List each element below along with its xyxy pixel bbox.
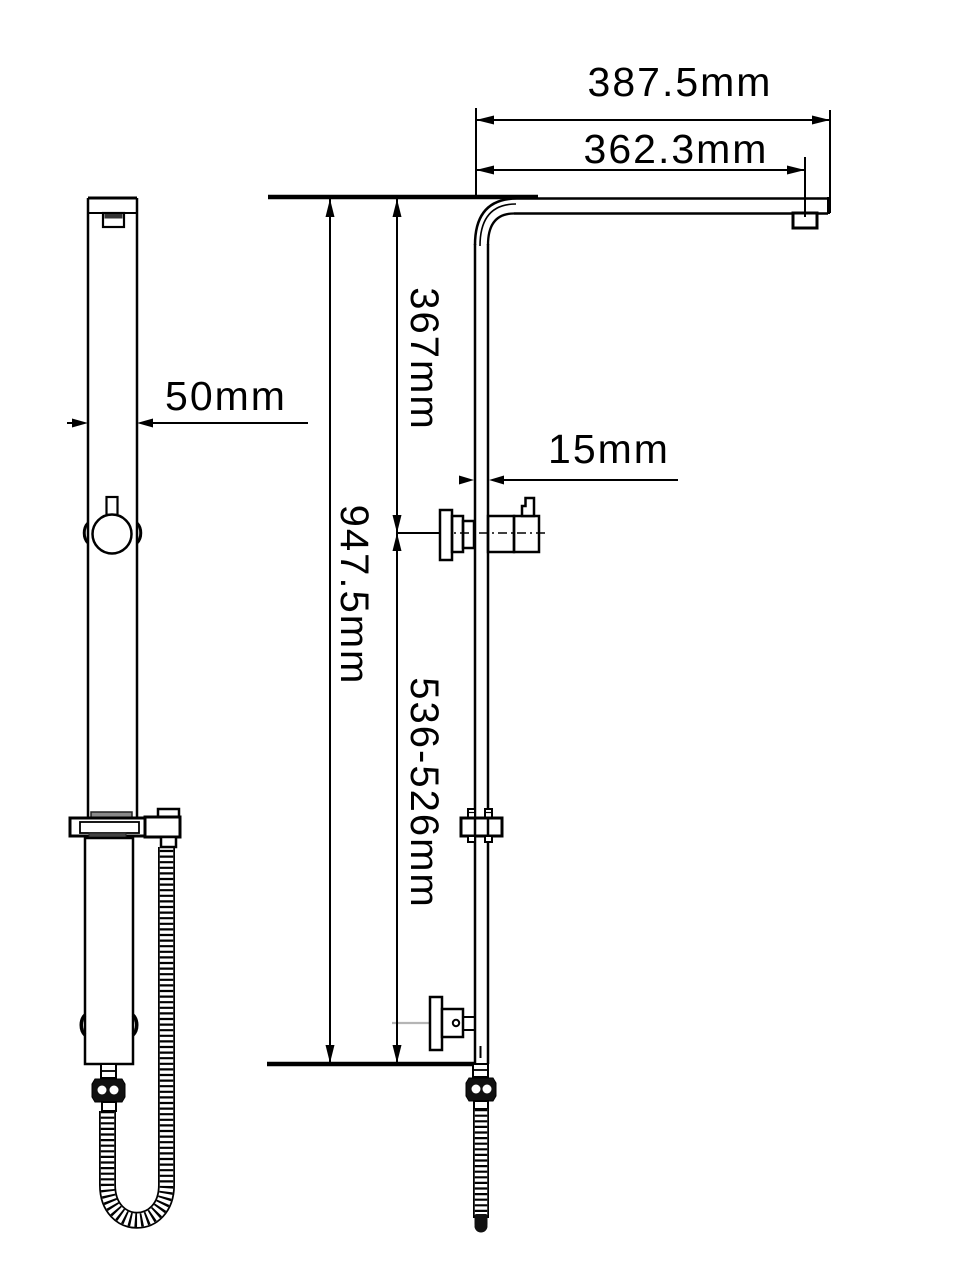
arrowhead [476, 116, 494, 125]
inlet-valve [392, 997, 474, 1050]
dimension-top-to-diverter: 367mm [393, 199, 447, 533]
top-mount-cap [103, 213, 124, 227]
slider-knob [84, 497, 141, 554]
drawing-canvas: 387.5mm 362.3mm 50mm 15mm [0, 0, 954, 1269]
dim-label-rail-width: 50mm [165, 373, 287, 419]
dim-label-arm-overall: 387.5mm [588, 59, 773, 105]
dimension-rail-width: 50mm [67, 373, 308, 428]
hose-connector-nut [92, 1079, 125, 1111]
dim-label-top-to-diverter: 367mm [402, 287, 446, 430]
arrowhead [393, 199, 402, 217]
technical-drawing: 387.5mm 362.3mm 50mm 15mm [0, 0, 954, 1269]
inlet-connector [466, 1064, 496, 1109]
side-view [70, 198, 180, 1220]
riser-pipe [475, 199, 517, 1065]
dim-label-pipe-depth: 15mm [548, 426, 670, 472]
corner-bend-outer [475, 199, 517, 246]
slide-bracket [461, 809, 502, 842]
arrowhead [476, 166, 494, 175]
holder-hose-stub [161, 837, 176, 847]
dimension-overall-height: 947.5mm [326, 199, 377, 1063]
arrowhead [812, 116, 830, 125]
diverter-valve [440, 498, 547, 560]
handshower-body [81, 838, 137, 1078]
arrowhead [489, 476, 504, 485]
dim-label-overall-height: 947.5mm [332, 505, 376, 686]
arrowhead [326, 199, 335, 217]
dim-label-diverter-to-inlet: 536-526mm [402, 677, 446, 908]
corner-bend-inner [488, 214, 514, 246]
dimension-arm-overall: 387.5mm [476, 59, 830, 125]
arrowhead [393, 515, 402, 533]
inlet-connector-nut [466, 1078, 496, 1101]
arrowhead [326, 1045, 335, 1063]
slider-knob-stem [107, 497, 118, 515]
dim-label-arm-to-outlet: 362.3mm [584, 126, 769, 172]
dimension-diverter-to-inlet: 536-526mm [393, 533, 447, 1063]
cap-dark-strip [105, 214, 123, 219]
dimension-arm-to-outlet: 362.3mm [476, 126, 805, 175]
diverter-handle [522, 498, 534, 516]
arrowhead [393, 1045, 402, 1063]
arrowhead [393, 533, 402, 551]
arrowhead [72, 419, 88, 428]
dimension-pipe-depth: 15mm [459, 426, 678, 485]
arrowhead [137, 419, 153, 428]
front-view [392, 197, 829, 1233]
handshower-holder [145, 817, 180, 837]
arrowhead [459, 476, 474, 485]
arrowhead [787, 166, 805, 175]
inlet-flange [430, 997, 442, 1050]
valve-flange [440, 510, 452, 560]
shower-arm [514, 197, 829, 228]
inlet-hose [475, 1109, 488, 1233]
